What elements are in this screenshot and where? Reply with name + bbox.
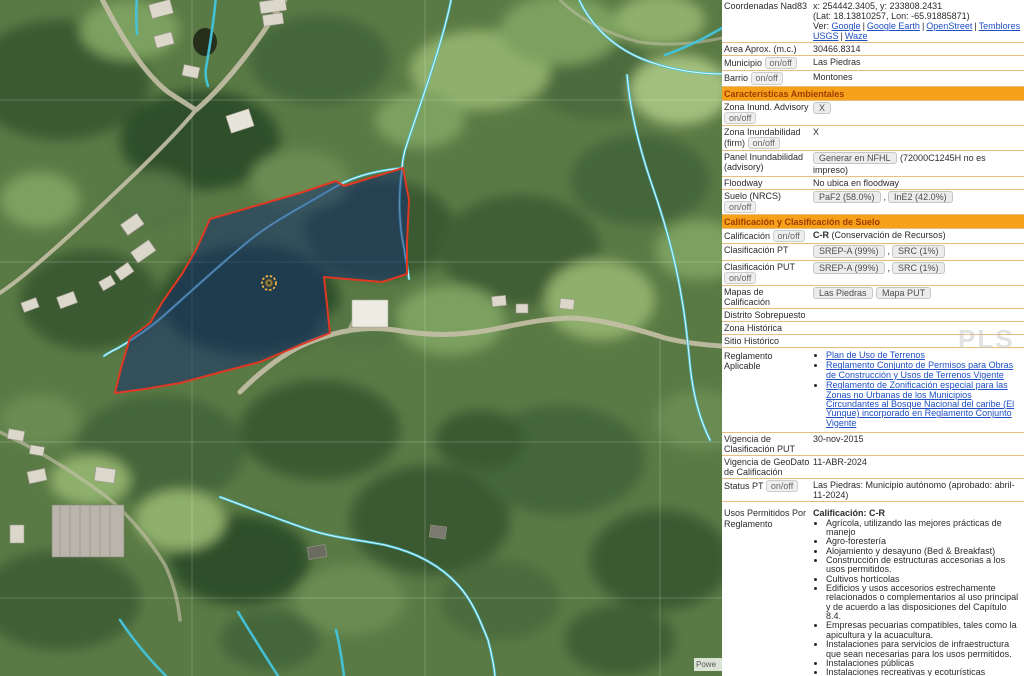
row-mapas: Mapas de Calificación Las Piedras Mapa P… bbox=[722, 286, 1024, 309]
row-status-pt: Status PT on/off Las Piedras: Municipio … bbox=[722, 479, 1024, 502]
clasificacion-pt-chip-src[interactable]: SRC (1%) bbox=[892, 245, 945, 257]
row-zona-inund-firm: Zona Inundabilidad (firm) on/off X bbox=[722, 126, 1024, 151]
list-item: Edificios y usos accesorios estrechament… bbox=[826, 584, 1021, 621]
list-item: Instalaciones recreativas y ecoturística… bbox=[826, 668, 1021, 676]
zona-inund-firm-value: X bbox=[813, 127, 1021, 137]
zona-inund-advisory-value[interactable]: X bbox=[813, 102, 831, 114]
panel-inund-label: Panel Inundabilidad (advisory) bbox=[724, 152, 813, 172]
generar-nfhl-button[interactable]: Generar en NFHL bbox=[813, 152, 897, 164]
list-item: Reglamento de Zonificación especial para… bbox=[826, 381, 1021, 428]
coordenadas-xy: x: 254442.3405, y: 233808.2431 bbox=[813, 1, 1021, 11]
clasificacion-put-onoff-toggle[interactable]: on/off bbox=[724, 272, 756, 284]
row-vigencia-put: Vigencia de Clasificación PUT 30-nov-201… bbox=[722, 433, 1024, 456]
clasificacion-put-chip-src[interactable]: SRC (1%) bbox=[892, 262, 945, 274]
clasificacion-pt-chip-srep[interactable]: SREP-A (99%) bbox=[813, 245, 885, 257]
clasificacion-pt-label: Clasificación PT bbox=[724, 245, 813, 255]
reglamento-link-conjunto[interactable]: Reglamento Conjunto de Permisos para Obr… bbox=[826, 360, 1013, 379]
row-suelo: Suelo (NRCS) on/off PaF2 (58.0%),InE2 (4… bbox=[722, 190, 1024, 215]
row-clasificacion-put: Clasificación PUT on/off SREP-A (99%),SR… bbox=[722, 261, 1024, 286]
floodway-label: Floodway bbox=[724, 178, 813, 188]
suelo-chip-paf2[interactable]: PaF2 (58.0%) bbox=[813, 191, 881, 203]
mapas-label: Mapas de Calificación bbox=[724, 287, 813, 307]
pond bbox=[193, 28, 217, 56]
calificacion-onoff-toggle[interactable]: on/off bbox=[773, 230, 805, 242]
list-item: Instalaciones para servicios de infraest… bbox=[826, 640, 1021, 659]
row-barrio: Barrio on/off Montones bbox=[722, 71, 1024, 86]
link-waze[interactable]: Waze bbox=[845, 31, 868, 41]
reglamento-link-zonificacion[interactable]: Reglamento de Zonificación especial para… bbox=[826, 380, 1014, 427]
suelo-chip-ine2[interactable]: InE2 (42.0%) bbox=[888, 191, 953, 203]
calificacion-code: C-R bbox=[813, 230, 829, 240]
row-clasificacion-pt: Clasificación PT SREP-A (99%),SRC (1%) bbox=[722, 244, 1024, 260]
zona-inund-advisory-label: Zona Inund. Advisory bbox=[724, 102, 809, 112]
floodway-value: No ubica en floodway bbox=[813, 178, 1021, 188]
calificacion-label: Calificación bbox=[724, 231, 770, 241]
status-pt-value: Las Piedras: Municipio autónomo (aprobad… bbox=[813, 480, 1021, 500]
row-distrito: Distrito Sobrepuesto bbox=[722, 309, 1024, 322]
vigencia-geodato-value: 11-ABR-2024 bbox=[813, 457, 1021, 467]
sitio-historico-label: Sitio Histórico bbox=[724, 336, 813, 346]
mapas-chip-las-piedras[interactable]: Las Piedras bbox=[813, 287, 873, 299]
zona-inund-advisory-onoff-toggle[interactable]: on/off bbox=[724, 112, 756, 124]
section-header-ambientales: Características Ambientales bbox=[722, 87, 1024, 101]
coordenadas-label: Coordenadas Nad83 bbox=[724, 1, 813, 11]
vigencia-geodato-label: Vigencia de GeoDato de Calificación bbox=[724, 457, 813, 477]
vigencia-put-label: Vigencia de Clasificación PUT bbox=[724, 434, 813, 454]
row-floodway: Floodway No ubica en floodway bbox=[722, 177, 1024, 190]
coordenadas-latlon: (Lat: 18.13810257, Lon: -65.91885871) bbox=[813, 11, 1021, 21]
list-item: Plan de Uso de Terrenos bbox=[826, 351, 1021, 360]
suelo-onoff-toggle[interactable]: on/off bbox=[724, 201, 756, 213]
area-value: 30466.8314 bbox=[813, 44, 1021, 54]
barrio-label: Barrio bbox=[724, 73, 748, 83]
status-pt-onoff-toggle[interactable]: on/off bbox=[766, 480, 798, 492]
ver-prefix: Ver: bbox=[813, 21, 829, 31]
row-reglamento: Reglamento Aplicable Plan de Uso de Terr… bbox=[722, 348, 1024, 433]
row-area: Area Aprox. (m.c.) 30466.8314 bbox=[722, 43, 1024, 56]
municipio-value: Las Piedras bbox=[813, 57, 1021, 67]
municipio-label: Municipio bbox=[724, 58, 762, 68]
link-google[interactable]: Google bbox=[832, 21, 861, 31]
status-pt-label: Status PT bbox=[724, 481, 763, 491]
list-item: Reglamento Conjunto de Permisos para Obr… bbox=[826, 361, 1021, 380]
zona-historica-label: Zona Histórica bbox=[724, 323, 813, 333]
row-calificacion: Calificación on/off C-R (Conservación de… bbox=[722, 229, 1024, 244]
row-zona-inund-advisory: Zona Inund. Advisory on/off X bbox=[722, 101, 1024, 126]
suelo-label: Suelo (NRCS) bbox=[724, 191, 781, 201]
row-zona-historica: Zona Histórica bbox=[722, 322, 1024, 335]
clasificacion-put-chip-srep[interactable]: SREP-A (99%) bbox=[813, 262, 885, 274]
reglamento-label: Reglamento Aplicable bbox=[724, 351, 813, 371]
municipio-onoff-toggle[interactable]: on/off bbox=[765, 57, 797, 69]
row-coordenadas: Coordenadas Nad83 x: 254442.3405, y: 233… bbox=[722, 0, 1024, 43]
map-canvas[interactable] bbox=[0, 0, 722, 676]
list-item: Empresas pecuarias compatibles, tales co… bbox=[826, 621, 1021, 640]
barrio-onoff-toggle[interactable]: on/off bbox=[751, 72, 783, 84]
row-usos: Usos Permitidos Por Reglamento Calificac… bbox=[722, 502, 1024, 676]
row-vigencia-geodato: Vigencia de GeoDato de Calificación 11-A… bbox=[722, 456, 1024, 479]
vigencia-put-value: 30-nov-2015 bbox=[813, 434, 1021, 444]
mapas-chip-mapa-put[interactable]: Mapa PUT bbox=[876, 287, 931, 299]
gis-parcel-viewer: Powe Coordenadas Nad83 x: 254442.3405, y… bbox=[0, 0, 1024, 676]
row-panel-inundabilidad: Panel Inundabilidad (advisory) Generar e… bbox=[722, 151, 1024, 177]
barrio-value: Montones bbox=[813, 72, 1021, 82]
usos-label: Usos Permitidos Por Reglamento bbox=[724, 508, 813, 528]
row-sitio-historico: Sitio Histórico bbox=[722, 335, 1024, 348]
calificacion-desc: (Conservación de Recursos) bbox=[832, 230, 946, 240]
clasificacion-put-label: Clasificación PUT bbox=[724, 262, 795, 272]
distrito-label: Distrito Sobrepuesto bbox=[724, 310, 813, 320]
parcel-info-panel: Coordenadas Nad83 x: 254442.3405, y: 233… bbox=[722, 0, 1024, 676]
link-google-earth[interactable]: Google Earth bbox=[867, 21, 920, 31]
coordenadas-ver-links: Ver: Google|Google Earth|OpenStreet|Temb… bbox=[813, 21, 1021, 41]
area-label: Area Aprox. (m.c.) bbox=[724, 44, 813, 54]
row-municipio: Municipio on/off Las Piedras bbox=[722, 56, 1024, 71]
list-item: Construcción de estructuras accesorias a… bbox=[826, 556, 1021, 575]
section-header-calificacion: Calificación y Clasificación de Suelo bbox=[722, 215, 1024, 229]
list-item: Agrícola, utilizando las mejores práctic… bbox=[826, 519, 1021, 538]
zona-inund-firm-onoff-toggle[interactable]: on/off bbox=[748, 137, 780, 149]
reglamento-link-plan-uso[interactable]: Plan de Uso de Terrenos bbox=[826, 350, 925, 360]
link-openstreet[interactable]: OpenStreet bbox=[926, 21, 972, 31]
